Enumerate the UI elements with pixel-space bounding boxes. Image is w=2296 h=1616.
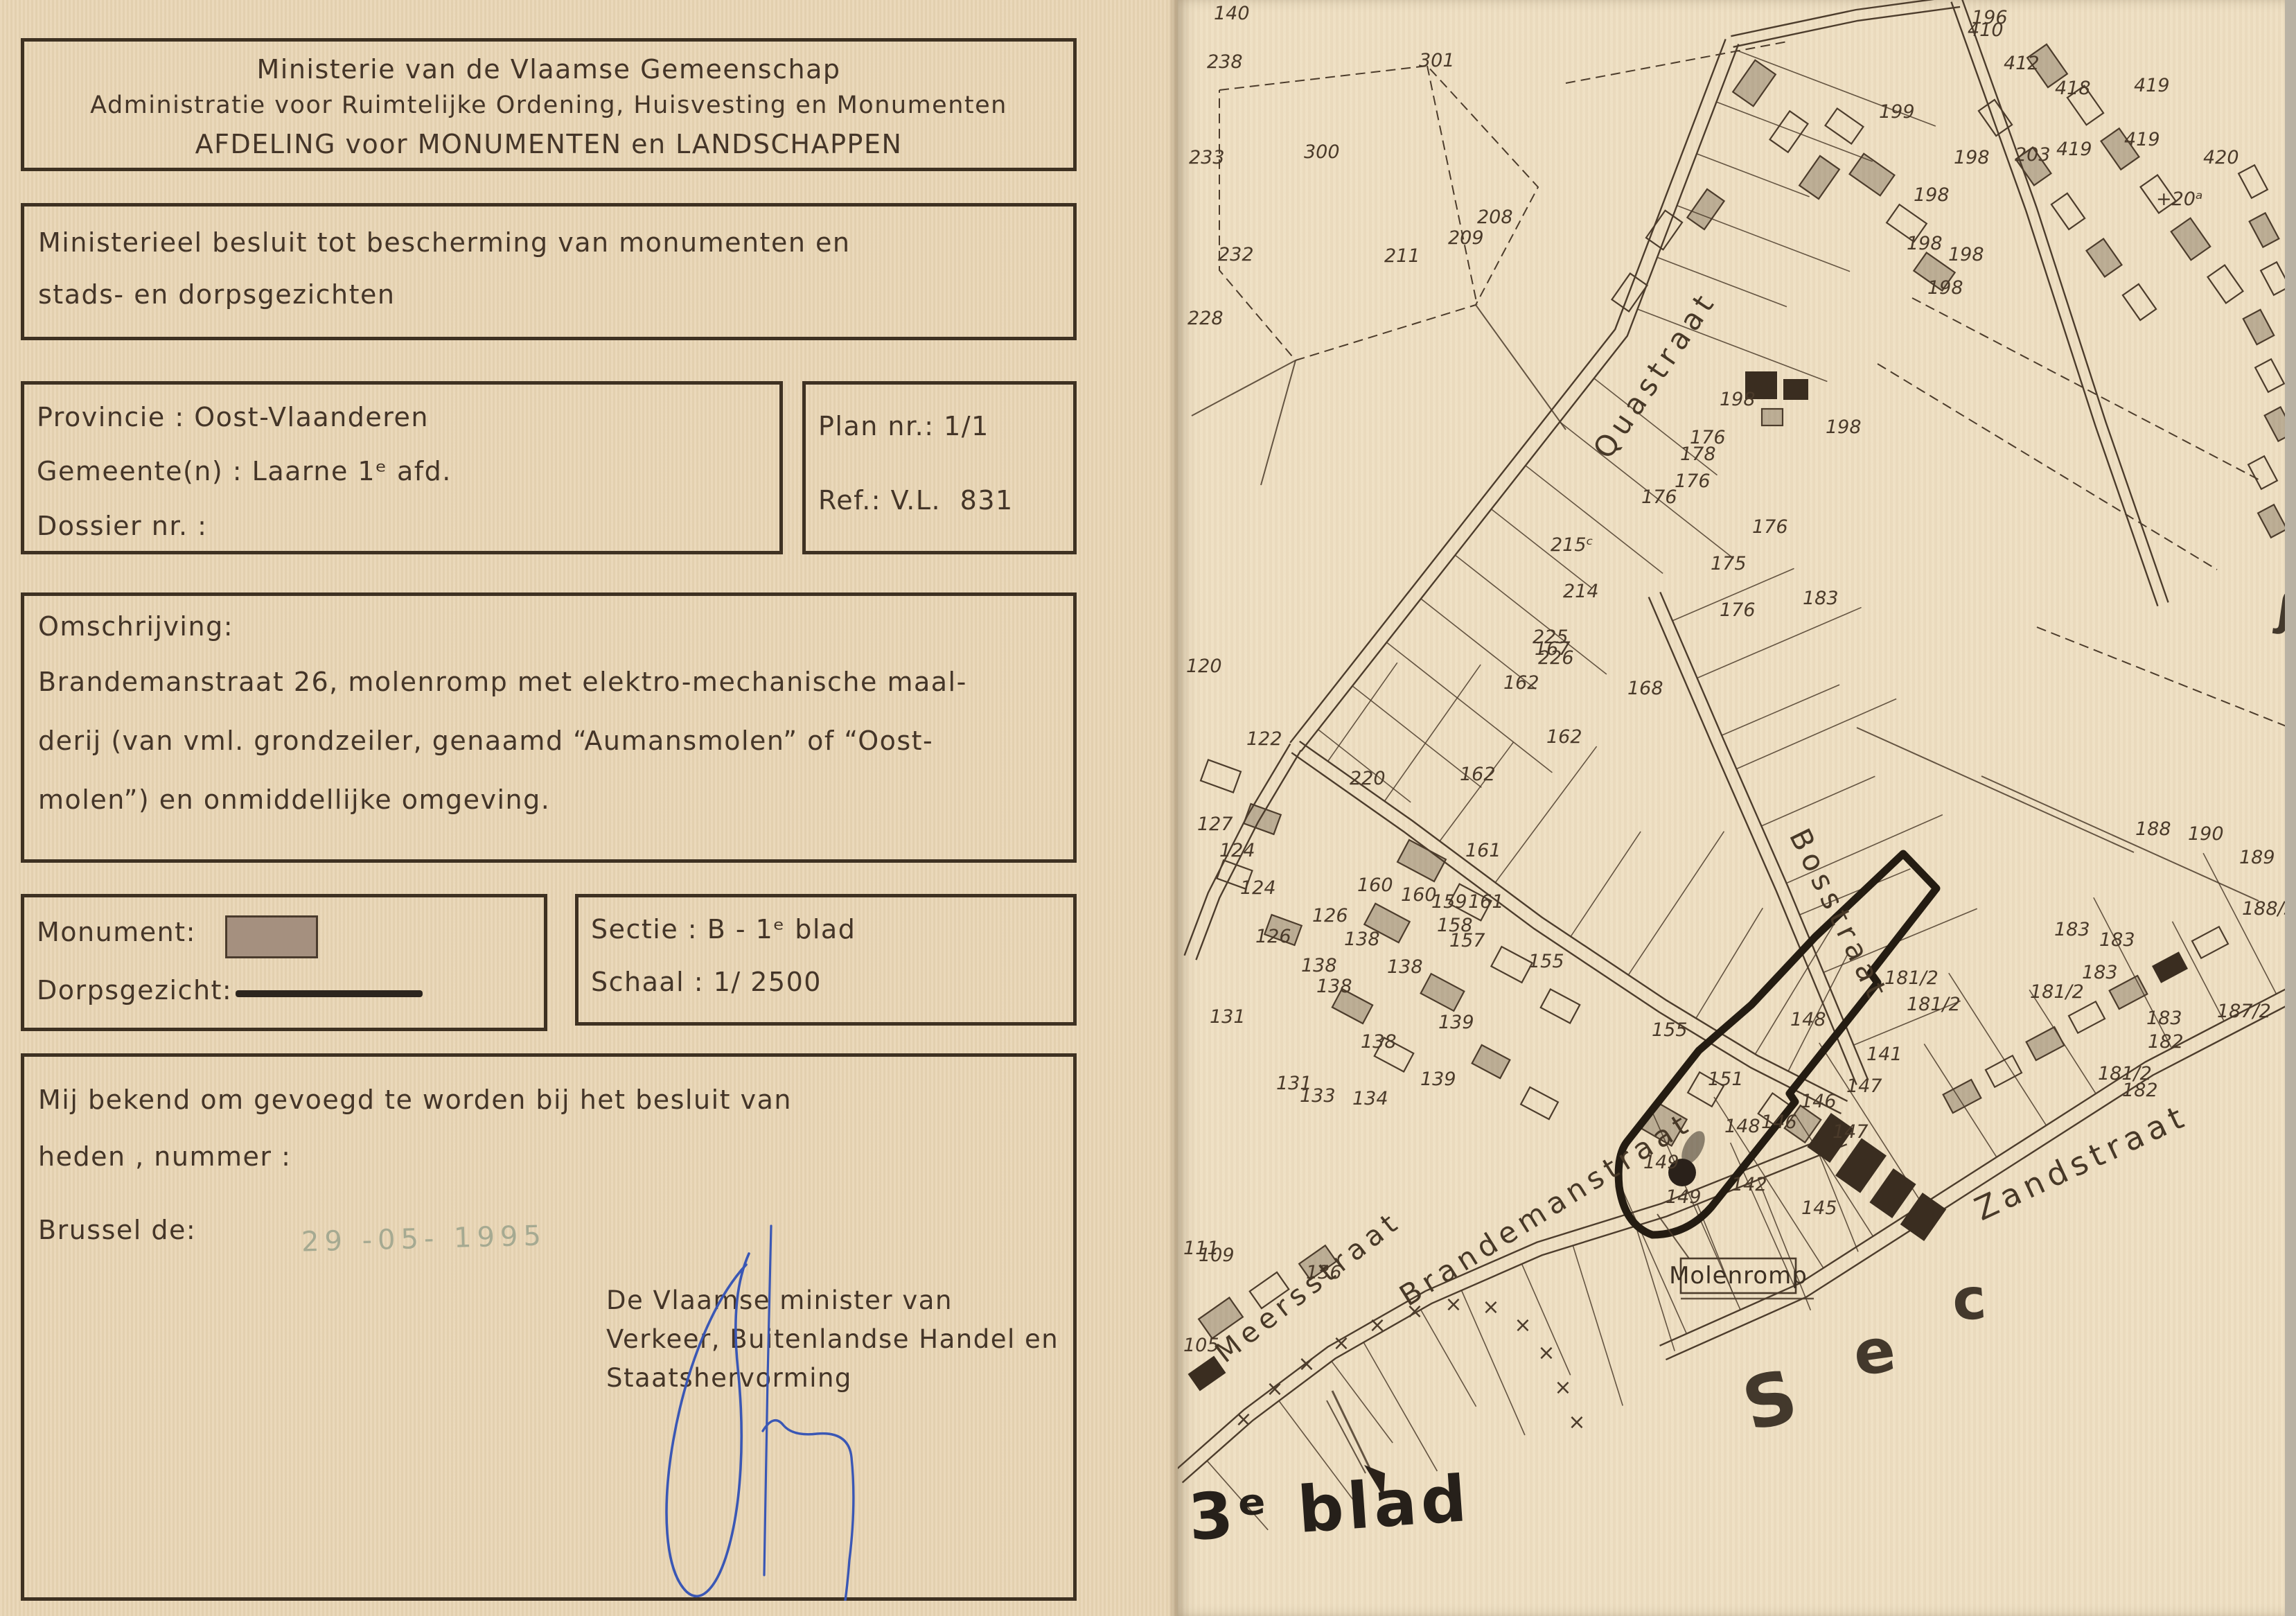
parcel-number: 182 — [2148, 1031, 2184, 1053]
svg-text:×: × — [1266, 1377, 1283, 1401]
plan-box: Plan nr.: 1/1 Ref.: V.L. 831 — [802, 381, 1077, 554]
parcel-number: 176 — [1641, 486, 1677, 508]
parcel-number: 183 — [2082, 962, 2118, 983]
parcel-number: 159 — [1431, 891, 1467, 913]
parcel-number: 162 — [1460, 764, 1496, 785]
description-line-1: Brandemanstraat 26, molenromp met elektr… — [38, 667, 967, 697]
provincie-value: Oost-Vlaanderen — [194, 402, 429, 432]
parcel-number: 176 — [1752, 516, 1788, 538]
description-line-2: derij (van vml. grondzeiler, genaamd “Au… — [38, 726, 933, 756]
svg-text:×: × — [1235, 1407, 1252, 1432]
gemeente-value: Laarne 1ᵉ afd. — [252, 456, 452, 486]
parcel-number: 238 — [1207, 51, 1243, 73]
parcel-number: 198 — [1954, 147, 1990, 168]
parcel-number: 122 — [1246, 728, 1282, 750]
svg-text:×: × — [1514, 1313, 1531, 1337]
parcel-number: 412 — [2004, 53, 2040, 74]
parcel-number: 215ᶜ — [1551, 534, 1593, 556]
parcel-number: 126 — [1312, 905, 1348, 926]
minister-signature — [599, 1223, 897, 1601]
parcel-number: 203 — [2015, 144, 2051, 166]
decree-box: Ministerieel besluit tot bescherming van… — [21, 203, 1077, 340]
parcel-number: 162 — [1503, 672, 1539, 694]
parcel-number: 183 — [1803, 588, 1839, 609]
parcel-number: 133 — [1300, 1085, 1336, 1107]
closing-line-2: heden , nummer : — [38, 1141, 291, 1172]
decree-line-1: Ministerieel besluit tot bescherming van… — [38, 227, 850, 258]
svg-text:×: × — [1445, 1292, 1462, 1317]
plan-label: Plan nr.: — [818, 411, 935, 441]
parcel-number: 176 — [1720, 599, 1756, 621]
parcel-number: 138 — [1316, 976, 1352, 997]
section-letter-stamp: S — [1735, 1353, 1805, 1448]
svg-text:×: × — [1368, 1313, 1386, 1337]
provincie-label: Provincie : — [37, 402, 185, 432]
parcel-number: 147 — [1833, 1121, 1869, 1143]
parcel-number: 145 — [1801, 1197, 1837, 1219]
parcel-number: 198 — [1720, 389, 1756, 410]
parcel-number: 233 — [1189, 147, 1225, 168]
parcel-number: 188 — [2135, 818, 2171, 840]
parcel-number: 183 — [2099, 929, 2135, 951]
monument-label: Monument: — [37, 917, 196, 947]
sectie-box: Sectie : B - 1ᵉ blad Schaal : 1/ 2500 — [575, 894, 1077, 1026]
parcel-number: 139 — [1438, 1012, 1474, 1033]
parcel-number: 138 — [1301, 955, 1337, 976]
legend-box: Monument: Dorpsgezicht: — [21, 894, 547, 1031]
parcel-number: 140 — [1214, 3, 1250, 24]
department-title: AFDELING voor MONUMENTEN en LANDSCHAPPEN — [24, 129, 1073, 159]
parcel-number: 228 — [1187, 308, 1224, 329]
parcel-number: 187/2 — [2217, 1001, 2271, 1022]
parcel-number: 419 — [2124, 129, 2160, 150]
parcel-number: 126 — [1255, 926, 1291, 947]
parcel-number: 232 — [1218, 244, 1254, 265]
parcel-number: 419 — [2134, 75, 2170, 96]
dorpsgezicht-label: Dorpsgezicht: — [37, 975, 232, 1005]
parcel-number: 199 — [1879, 101, 1915, 123]
parcel-number: 151 — [1708, 1069, 1744, 1090]
parcel-number: 127 — [1197, 814, 1233, 835]
parcel-number: 208 — [1477, 207, 1513, 228]
parcel-number: 155 — [1652, 1019, 1688, 1041]
parcel-number: 146 — [1761, 1112, 1797, 1133]
parcel-number: 160 — [1401, 884, 1437, 906]
schaal-line: Schaal : 1/ 2500 — [591, 967, 822, 997]
parcel-number: 168 — [1627, 678, 1663, 699]
administration-title: Administratie voor Ruimtelijke Ordening,… — [24, 91, 1073, 119]
parcel-number: 183 — [2054, 919, 2090, 940]
svg-text:×: × — [1537, 1341, 1555, 1365]
parcel-number: 139 — [1420, 1069, 1456, 1090]
parcel-number: 214 — [1563, 581, 1599, 602]
decree-line-2: stads- en dorpsgezichten — [38, 279, 396, 310]
parcel-number: 161 — [1468, 891, 1504, 913]
parcel-number: 181/2 — [2098, 1063, 2152, 1084]
parcel-number: 211 — [1384, 245, 1420, 267]
parcel-number: 198 — [1907, 233, 1943, 254]
parcel-number: 420 — [2203, 147, 2239, 168]
street-name-label: Brandemanstraat — [1393, 1105, 1698, 1312]
date-stamp: 29 -05- 1995 — [301, 1220, 547, 1258]
molenromp-label: Molenromp — [1669, 1262, 1808, 1290]
gemeente-label: Gemeente(n) : — [37, 456, 242, 486]
closing-line-1: Mij bekend om gevoegd te worden bij het … — [38, 1084, 792, 1115]
parcel-number: 176 — [1675, 471, 1711, 492]
ref-value: 831 — [960, 485, 1014, 516]
parcel-number: 301 — [1419, 50, 1455, 71]
parcel-number: +20ᵃ — [2156, 188, 2203, 210]
parcel-number: 183 — [2146, 1008, 2182, 1029]
parcel-number: 220 — [1350, 768, 1386, 789]
decree-form-page: Ministerie van de Vlaamse Gemeenschap Ad… — [0, 0, 1178, 1616]
closing-line-3: Brussel de: — [38, 1215, 196, 1245]
provincie-row: Provincie : Oost-Vlaanderen — [37, 402, 429, 432]
svg-text:×: × — [1298, 1352, 1315, 1376]
parcel-number: 131 — [1210, 1006, 1246, 1028]
ref-label: Ref.: V.L. — [818, 485, 941, 516]
parcel-number: 160 — [1357, 875, 1393, 896]
province-box: Provincie : Oost-Vlaanderen Gemeente(n) … — [21, 381, 783, 554]
parcel-number: 178 — [1680, 443, 1716, 465]
description-title: Omschrijving: — [38, 611, 233, 642]
parcel-number: 142 — [1731, 1174, 1767, 1195]
parcel-number: 198 — [1948, 244, 1984, 265]
parcel-number: 161 — [1465, 840, 1501, 861]
cadastral-map-page: ××××××××××××Molenromp1402382333003012322… — [1178, 0, 2296, 1616]
parcel-number: 148 — [1790, 1009, 1826, 1030]
parcel-number: 158 — [1437, 915, 1473, 936]
ref-row: Ref.: V.L. 831 — [818, 485, 1014, 516]
sheet-number-stamp: 3ᵉ blad — [1186, 1461, 1473, 1555]
parcel-number: 300 — [1304, 141, 1340, 163]
section-letter-stamp: c — [1950, 1266, 1988, 1334]
parcel-number: 419 — [2056, 139, 2092, 160]
parcel-number: 138 — [1361, 1031, 1397, 1053]
parcel-number: 175 — [1711, 553, 1747, 574]
dossier-row: Dossier nr. : — [37, 511, 207, 541]
section-letter-stamp: e — [1849, 1313, 1900, 1389]
description-box: Omschrijving: Brandemanstraat 26, molenr… — [21, 592, 1077, 863]
parcel-number: 181/2 — [2030, 981, 2084, 1003]
parcel-number: 167 — [1535, 638, 1571, 660]
cadastral-map-svg: ××××××××××××Molenromp1402382333003012322… — [1178, 0, 2296, 1616]
parcel-number: 198 — [1826, 416, 1862, 438]
parcel-number: 181/2 — [1907, 994, 1961, 1015]
parcel-number: 198 — [1914, 184, 1950, 206]
parcel-number: 111 — [1183, 1238, 1219, 1259]
parcel-number: 138 — [1344, 929, 1380, 950]
parcel-number: 124 — [1240, 877, 1276, 899]
street-name-label: Meersstraat — [1210, 1204, 1408, 1369]
sectie-line: Sectie : B - 1ᵉ blad — [591, 914, 856, 945]
gemeente-row: Gemeente(n) : Laarne 1ᵉ afd. — [37, 456, 452, 486]
scanned-protection-decree: Ministerie van de Vlaamse Gemeenschap Ad… — [0, 0, 2296, 1616]
parcel-number: 146 — [1801, 1091, 1837, 1112]
parcel-number: 138 — [1387, 956, 1423, 978]
parcel-number: 418 — [2055, 78, 2091, 99]
parcel-number: 189 — [2239, 847, 2275, 868]
scan-edge-strip — [2285, 0, 2296, 1616]
parcel-number: 190 — [2188, 823, 2224, 845]
dorpsgezicht-line-sample — [236, 990, 423, 997]
parcel-number: 134 — [1352, 1088, 1388, 1109]
parcel-number: 141 — [1866, 1044, 1902, 1065]
svg-text:×: × — [1554, 1376, 1571, 1400]
monument-swatch — [225, 915, 318, 958]
parcel-number: 162 — [1546, 726, 1582, 748]
description-line-3: molen”) en onmiddellijke omgeving. — [38, 784, 550, 815]
parcel-number: 198 — [1927, 277, 1963, 299]
closing-box: Mij bekend om gevoegd te worden bij het … — [21, 1053, 1077, 1601]
parcel-number: 209 — [1448, 227, 1484, 249]
plan-row: Plan nr.: 1/1 — [818, 411, 989, 441]
svg-text:×: × — [1568, 1410, 1585, 1434]
parcel-number: 124 — [1219, 840, 1255, 861]
parcel-number: 120 — [1186, 656, 1222, 677]
parcel-number: 149 — [1666, 1186, 1702, 1208]
street-name-label: Zandstraat — [1969, 1096, 2194, 1228]
dossier-label: Dossier nr. : — [37, 511, 207, 541]
svg-text:×: × — [1332, 1331, 1350, 1355]
svg-text:×: × — [1482, 1295, 1499, 1319]
header-box: Ministerie van de Vlaamse Gemeenschap Ad… — [21, 38, 1077, 171]
parcel-number: 410 — [1968, 19, 2004, 41]
parcel-number: 155 — [1528, 951, 1564, 972]
ministry-title: Ministerie van de Vlaamse Gemeenschap — [24, 54, 1073, 85]
parcel-number: 148 — [1724, 1116, 1760, 1137]
parcel-number: 147 — [1846, 1075, 1882, 1097]
plan-value: 1/1 — [944, 411, 989, 441]
